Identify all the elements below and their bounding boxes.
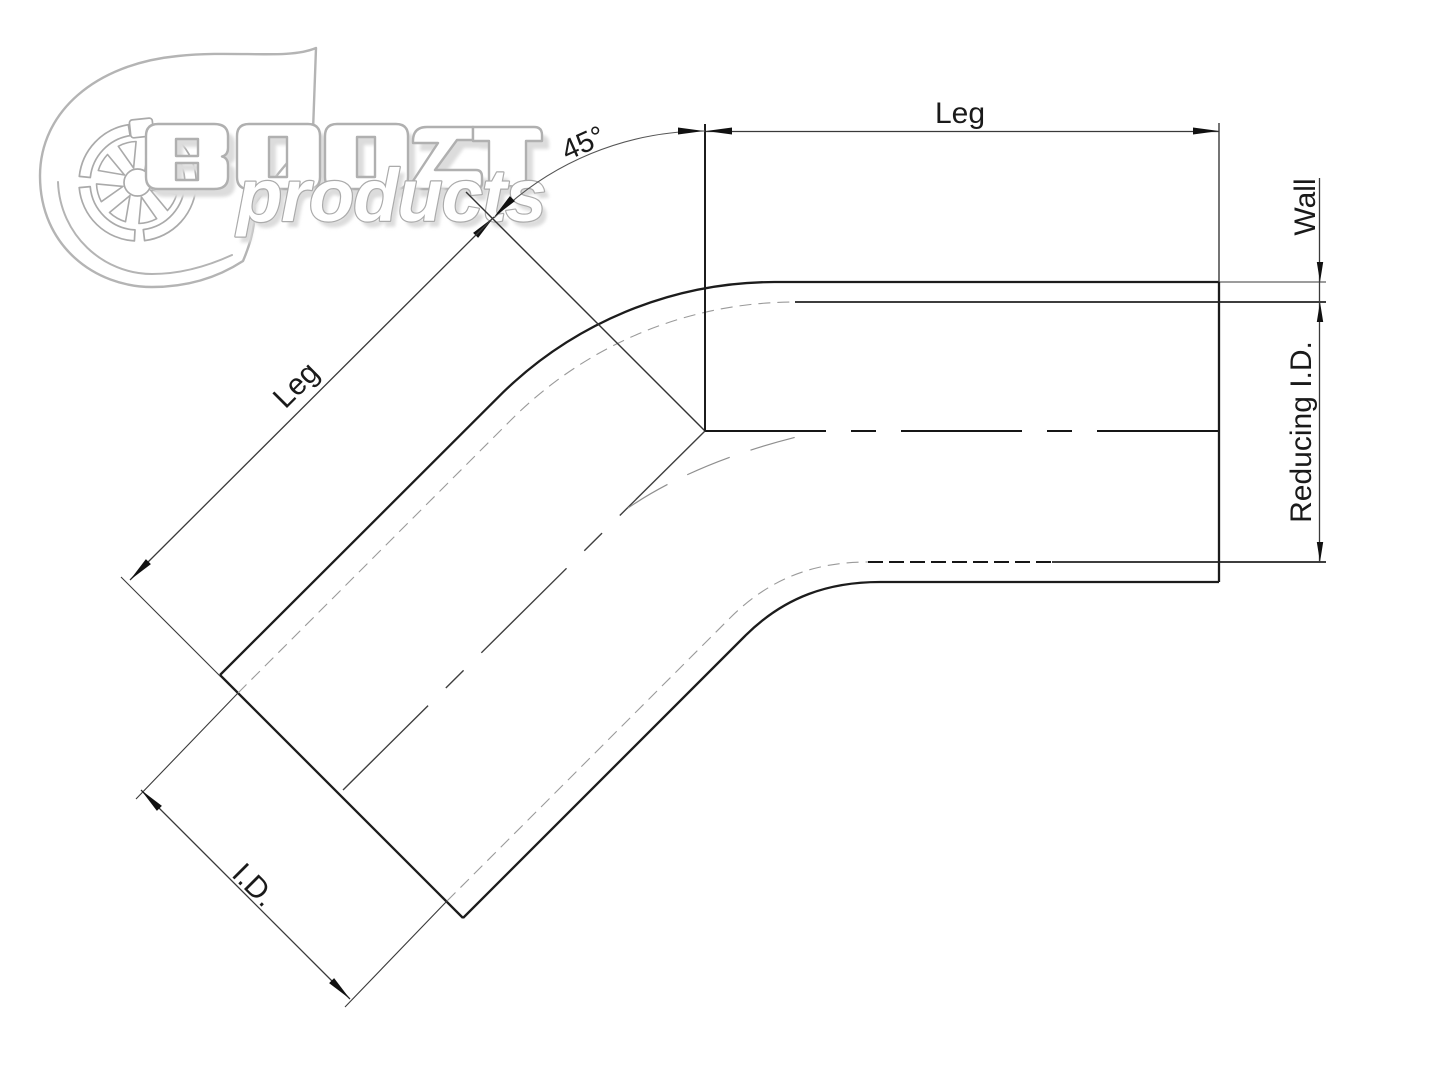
svg-text:Wall: Wall [1289,178,1322,235]
svg-text:Reducing I.D.: Reducing I.D. [1285,341,1318,523]
svg-text:Leg: Leg [935,97,985,130]
